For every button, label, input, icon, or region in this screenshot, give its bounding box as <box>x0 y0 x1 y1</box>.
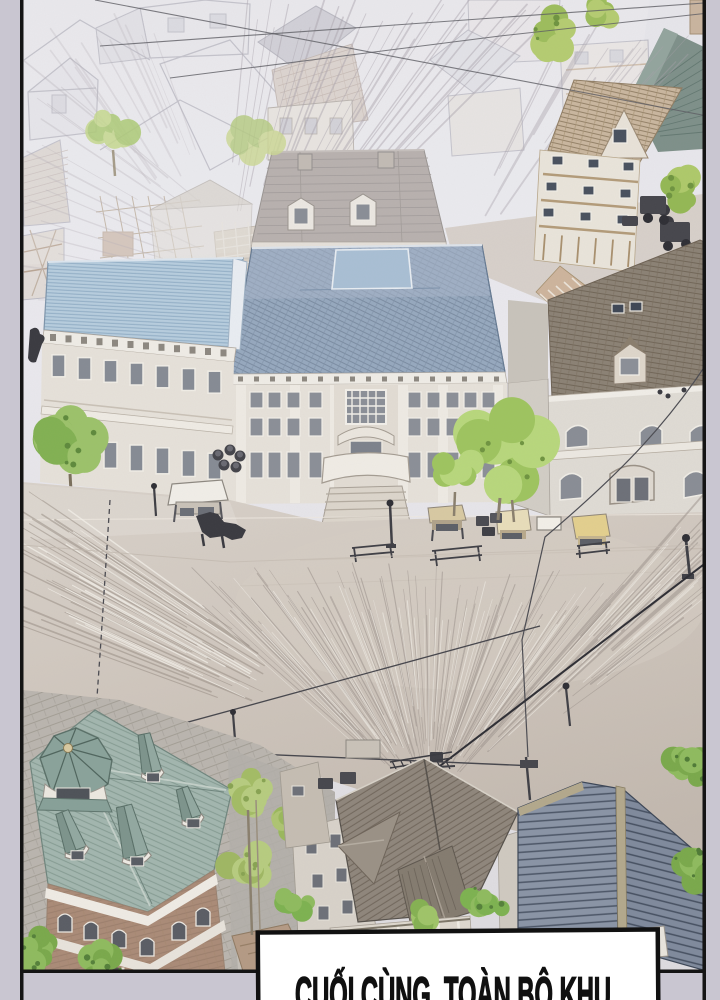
svg-text:CUỐI CÙNG, TOÀN BỘ KHU: CUỐI CÙNG, TOÀN BỘ KHU <box>295 967 611 1000</box>
